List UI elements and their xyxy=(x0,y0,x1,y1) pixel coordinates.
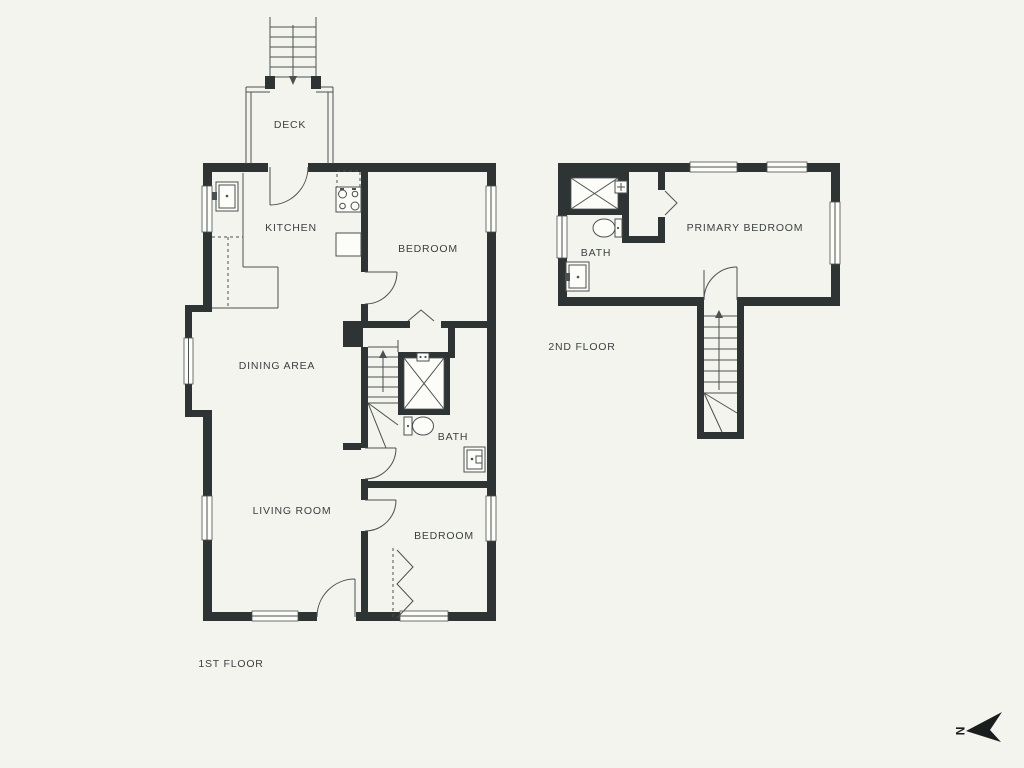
stairwell-door xyxy=(704,267,737,300)
first-floor-label: 1ST FLOOR xyxy=(198,658,263,670)
bedroom-top-window xyxy=(486,186,496,232)
shower-head-icon xyxy=(417,353,429,361)
bath-2-label: BATH xyxy=(581,247,611,259)
toilet-2 xyxy=(593,219,622,237)
stove xyxy=(336,171,361,212)
second-floor-stairs xyxy=(704,267,737,432)
bedroom-top-closet-door xyxy=(408,310,434,321)
living-room-front-window xyxy=(252,611,298,621)
bath-label: BATH xyxy=(438,431,468,443)
primary-bedroom-top-window-1 xyxy=(690,162,737,172)
bedroom-bottom-side-window xyxy=(486,496,496,541)
bedroom-top-door xyxy=(365,272,397,304)
front-door xyxy=(317,579,355,617)
bath-sink xyxy=(464,447,485,472)
deck-stairs xyxy=(265,17,321,89)
dining-bay-window xyxy=(184,338,193,384)
bedroom-bottom-label: BEDROOM xyxy=(414,530,474,542)
primary-bedroom-side-window xyxy=(830,202,840,264)
kitchen-sink xyxy=(212,182,238,211)
bedroom-bottom-door xyxy=(365,500,396,531)
dining-area-label: DINING AREA xyxy=(239,360,315,372)
first-floor-stairs xyxy=(368,340,398,448)
north-arrow-icon xyxy=(966,712,1002,742)
bedroom-bottom-front-window xyxy=(400,611,448,621)
first-floor: DECK KITCHEN BEDROOM DINING AREA BATH LI… xyxy=(184,17,496,670)
first-floor-bath-fixtures xyxy=(398,352,485,472)
primary-bedroom-label: PRIMARY BEDROOM xyxy=(687,222,804,234)
closet-accordion-door xyxy=(665,191,677,215)
deck-structure xyxy=(246,17,333,164)
kitchen-fixtures xyxy=(212,171,361,308)
deck-label: DECK xyxy=(274,119,306,131)
north-arrow: N xyxy=(953,712,1002,742)
floor-plan: DECK KITCHEN BEDROOM DINING AREA BATH LI… xyxy=(0,0,1024,768)
bedroom-bottom-closet-door xyxy=(393,548,413,618)
primary-bedroom-top-window-2 xyxy=(767,162,807,172)
bath-2-sink xyxy=(565,262,589,291)
hall-door xyxy=(365,448,396,479)
north-letter: N xyxy=(953,727,967,736)
shower-2 xyxy=(565,172,627,215)
second-floor-label: 2ND FLOOR xyxy=(548,341,615,353)
second-floor: BATH PRIMARY BEDROOM 2ND FLOOR xyxy=(548,162,840,439)
bedroom-top-label: BEDROOM xyxy=(398,243,458,255)
second-floor-interior-walls xyxy=(622,172,704,297)
deck-entry-door xyxy=(270,167,308,205)
shower xyxy=(398,352,450,415)
living-room-label: LIVING ROOM xyxy=(253,505,332,517)
bath-2-window xyxy=(557,216,567,258)
kitchen-label: KITCHEN xyxy=(265,222,317,234)
kitchen-window xyxy=(202,186,212,232)
living-room-side-window xyxy=(202,496,212,540)
kitchen-counter-section xyxy=(336,233,361,256)
chimney-block xyxy=(343,321,363,347)
toilet xyxy=(404,417,434,435)
